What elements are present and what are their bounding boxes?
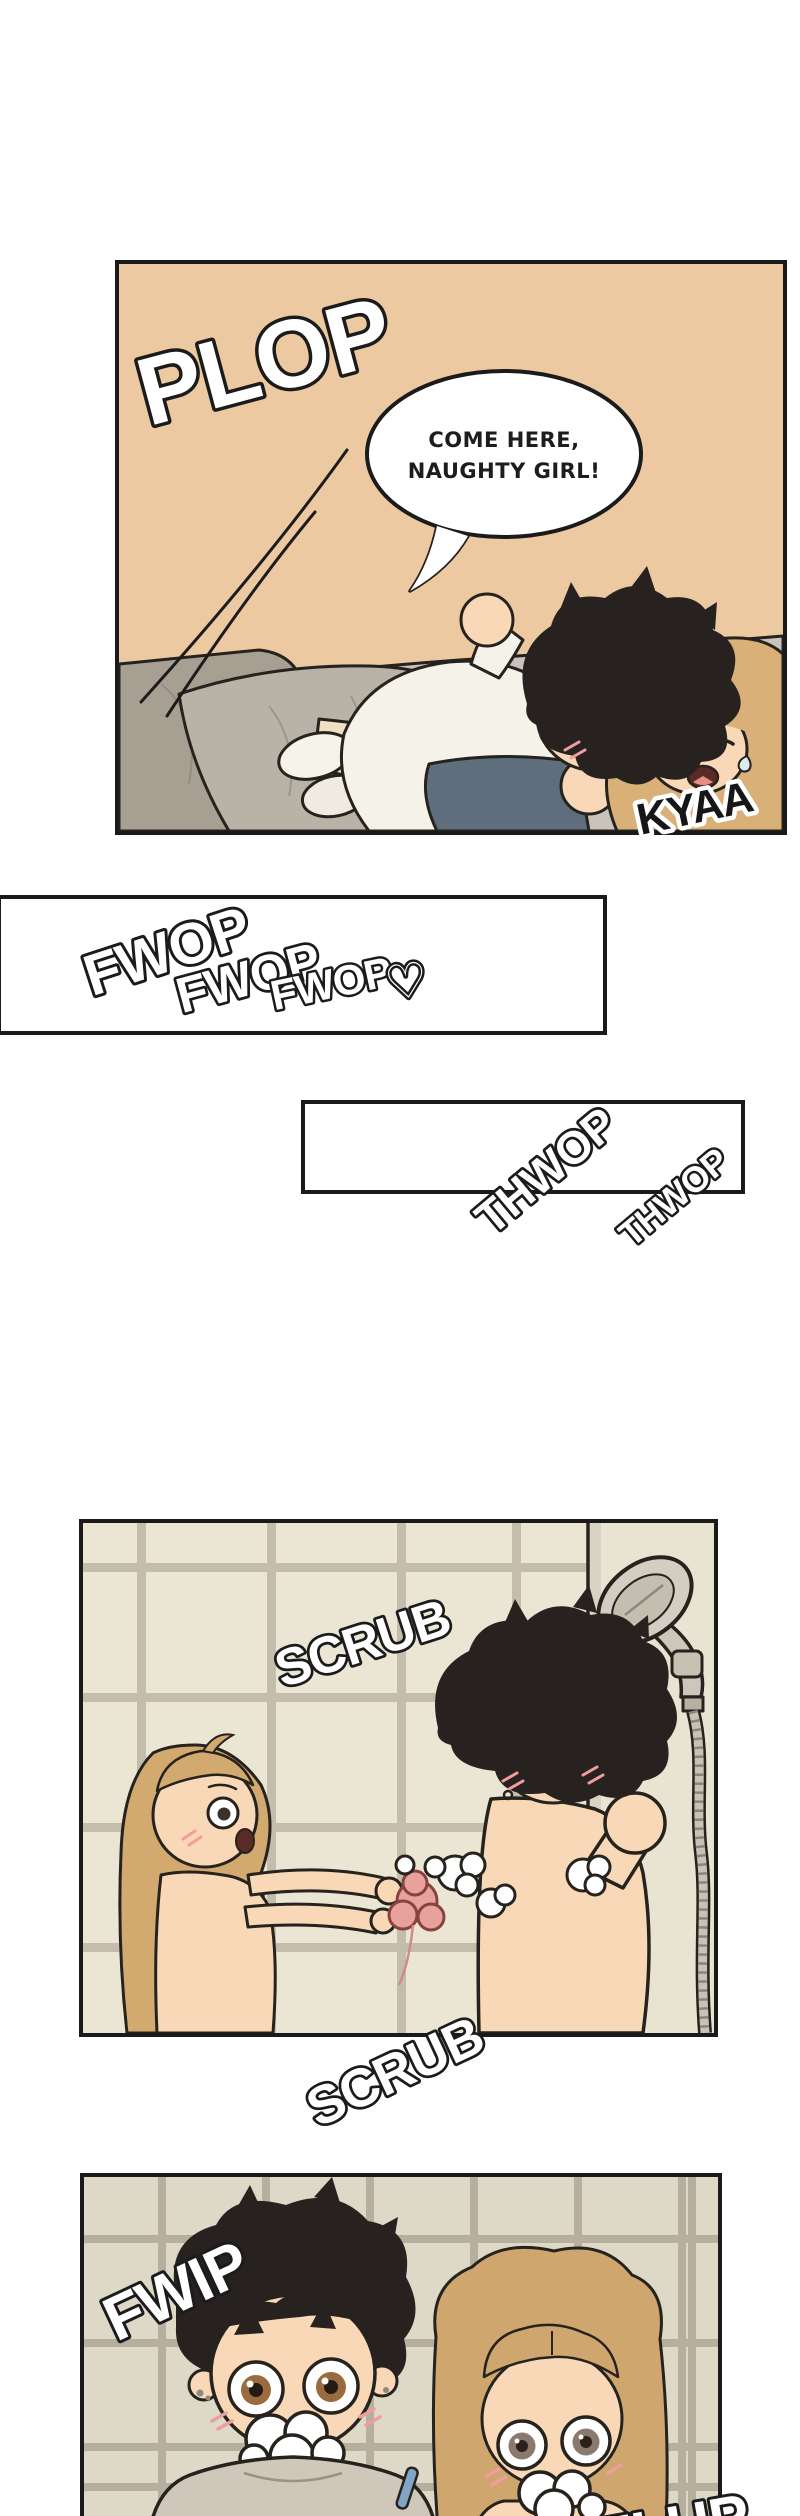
- panel-shower: SCRUB: [79, 1519, 718, 2037]
- heart-icon: ♡: [381, 951, 430, 1012]
- shower-art: SCRUB: [83, 1523, 714, 2033]
- foam-faces-art: FWIP: [84, 2177, 718, 2516]
- loofah-string: [399, 1925, 413, 1985]
- taupe-shirt: [150, 2457, 436, 2516]
- panel-bedroom: COME HERE, NAUGHTY GIRL! PLOP: [115, 260, 787, 835]
- hair-spike: [503, 1599, 529, 1627]
- bubble-line-1: COME HERE,: [428, 428, 579, 452]
- sfx-scrub-1: SCRUB: [268, 1589, 457, 1700]
- earring-stud: [206, 2396, 211, 2401]
- eye-highlight: [322, 2378, 329, 2385]
- girl-shower: [120, 1734, 402, 2033]
- hair-spike: [234, 2185, 262, 2213]
- bubble-body: [367, 371, 641, 537]
- holder-bracket: [672, 1651, 702, 1677]
- girl-arm-upper: [248, 1870, 388, 1899]
- eye-highlight: [579, 2435, 584, 2440]
- eye-highlight: [247, 2381, 254, 2388]
- bedroom-art: COME HERE, NAUGHTY GIRL! PLOP: [119, 264, 783, 831]
- hose-connector: [683, 1697, 703, 1711]
- bubble-line-2: NAUGHTY GIRL!: [408, 459, 601, 483]
- earring: [504, 1791, 512, 1799]
- girl-pupil: [218, 1808, 231, 1821]
- eye-highlight: [515, 2439, 520, 2444]
- earring-stud: [383, 2387, 389, 2393]
- panel-thwop-strip: [301, 1100, 745, 1194]
- boy-fist: [461, 594, 513, 646]
- boy-foam: [150, 2177, 436, 2516]
- boy-shower: [435, 1585, 677, 2033]
- earring-stud: [197, 2390, 204, 2397]
- girl-body: [156, 1872, 276, 2033]
- girl-face: [482, 2351, 622, 2487]
- girl-open-mouth: [236, 1829, 254, 1853]
- panel-fwop-strip: FWOP FWOP FWOP ♡: [0, 895, 607, 1035]
- comic-page: COME HERE, NAUGHTY GIRL! PLOP KYAA FWOP …: [0, 0, 800, 2516]
- sfx-plop: PLOP: [126, 277, 402, 447]
- boy-fist: [605, 1793, 665, 1853]
- speech-bubble: COME HERE, NAUGHTY GIRL!: [367, 371, 641, 591]
- hose-body: [693, 1711, 705, 2033]
- girl-foam: [433, 2247, 667, 2516]
- fwop-art: FWOP FWOP FWOP ♡: [1, 899, 603, 1031]
- panel-foam-faces: FWIP: [80, 2173, 722, 2516]
- bubble-tail-fill: [410, 526, 468, 591]
- boy-head: [522, 566, 740, 785]
